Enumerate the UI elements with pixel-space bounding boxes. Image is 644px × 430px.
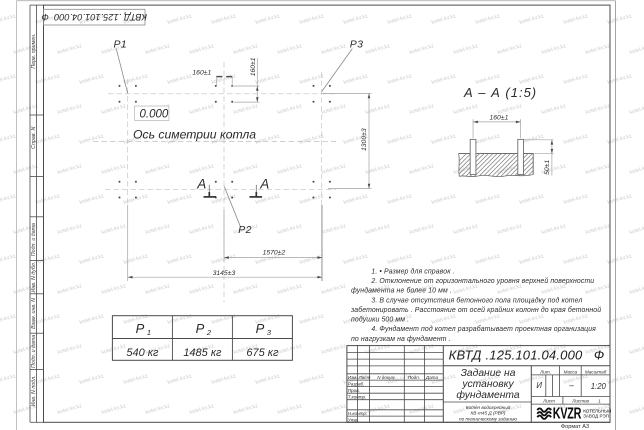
svg-text:kotel-kv.kz: kotel-kv.kz	[497, 43, 523, 56]
svg-text:kotel-kv.kz: kotel-kv.kz	[519, 253, 545, 266]
svg-text:160±1: 160±1	[490, 115, 509, 122]
svg-text:kotel-kv.kz: kotel-kv.kz	[123, 193, 149, 206]
svg-text:kotel-kv.kz: kotel-kv.kz	[57, 103, 83, 116]
svg-text:Инв. N дубл.: Инв. N дубл.	[31, 262, 37, 293]
svg-text:kotel-kv.kz: kotel-kv.kz	[541, 43, 567, 56]
svg-text:Перв. примен.: Перв. примен.	[31, 33, 37, 68]
svg-text:kotel-kv.kz: kotel-kv.kz	[563, 193, 589, 206]
svg-text:P3: P3	[350, 39, 363, 51]
svg-text:kotel-kv.kz: kotel-kv.kz	[35, 193, 61, 206]
svg-text:kotel-kv.kz: kotel-kv.kz	[519, 13, 545, 26]
svg-text:фундамента не более 10 мм .: фундамента не более 10 мм .	[351, 287, 452, 295]
svg-text:фундамента: фундамента	[456, 389, 520, 401]
svg-text:kotel-kv.kz: kotel-kv.kz	[0, 313, 17, 326]
svg-text:Т.контр.: Т.контр.	[348, 395, 367, 400]
svg-text:kotel-kv.kz: kotel-kv.kz	[255, 373, 281, 386]
svg-text:kotel-kv.kz: kotel-kv.kz	[475, 133, 501, 146]
svg-text:kotel-kv.kz: kotel-kv.kz	[167, 373, 193, 386]
svg-text:kotel-kv.kz: kotel-kv.kz	[343, 253, 369, 266]
svg-text:А – А (1:5): А – А (1:5)	[463, 85, 537, 100]
svg-text:160±1: 160±1	[192, 70, 211, 77]
svg-text:kotel-kv.kz: kotel-kv.kz	[79, 133, 105, 146]
svg-text:kotel-kv.kz: kotel-kv.kz	[0, 373, 17, 386]
svg-text:kotel-kv.kz: kotel-kv.kz	[629, 283, 644, 296]
svg-text:1:20: 1:20	[591, 382, 607, 391]
svg-text:kotel-kv.kz: kotel-kv.kz	[409, 163, 435, 176]
svg-text:kotel-kv.kz: kotel-kv.kz	[57, 403, 83, 416]
svg-text:kotel-kv.kz: kotel-kv.kz	[629, 103, 644, 116]
svg-text:P: P	[256, 321, 265, 336]
svg-text:А: А	[196, 177, 206, 192]
svg-text:подушки 500 мм .: подушки 500 мм .	[351, 316, 409, 324]
svg-text:kotel-kv.kz: kotel-kv.kz	[585, 163, 611, 176]
svg-text:Задание на: Задание на	[461, 368, 516, 379]
svg-text:kotel-kv.kz: kotel-kv.kz	[35, 73, 61, 86]
svg-text:kotel-kv.kz: kotel-kv.kz	[607, 373, 633, 386]
svg-text:kotel-kv.kz: kotel-kv.kz	[321, 343, 347, 356]
svg-text:Лист: Лист	[542, 399, 555, 404]
svg-text:kotel-kv.kz: kotel-kv.kz	[277, 223, 303, 236]
svg-text:kotel-kv.kz: kotel-kv.kz	[79, 313, 105, 326]
svg-text:Изм.: Изм.	[348, 375, 358, 380]
svg-text:kotel-kv.kz: kotel-kv.kz	[299, 313, 325, 326]
svg-text:kotel-kv.kz: kotel-kv.kz	[299, 13, 325, 26]
svg-text:kotel-kv.kz: kotel-kv.kz	[145, 223, 171, 236]
svg-text:kotel-kv.kz: kotel-kv.kz	[519, 313, 545, 326]
svg-text:kotel-kv.kz: kotel-kv.kz	[123, 253, 149, 266]
svg-text:kotel-kv.kz: kotel-kv.kz	[57, 163, 83, 176]
svg-text:kotel-kv.kz: kotel-kv.kz	[409, 43, 435, 56]
svg-text:Формат А3: Формат А3	[561, 424, 589, 430]
svg-text:Масштаб: Масштаб	[585, 369, 607, 374]
svg-text:kotel-kv.kz: kotel-kv.kz	[0, 193, 17, 206]
svg-text:kotel-kv.kz: kotel-kv.kz	[277, 283, 303, 296]
svg-text:Масса: Масса	[564, 369, 578, 374]
svg-text:160±1: 160±1	[250, 57, 257, 76]
svg-text:kotel-kv.kz: kotel-kv.kz	[233, 283, 259, 296]
svg-text:ЗАВОД РЭП: ЗАВОД РЭП	[583, 414, 609, 419]
svg-text:kotel-kv.kz: kotel-kv.kz	[255, 73, 281, 86]
svg-text:kotel-kv.kz: kotel-kv.kz	[277, 163, 303, 176]
svg-text:установку: установку	[461, 379, 514, 390]
svg-text:2: 2	[206, 328, 212, 337]
svg-text:–: –	[568, 381, 574, 390]
svg-text:kotel-kv.kz: kotel-kv.kz	[321, 43, 347, 56]
svg-text:kotel-kv.kz: kotel-kv.kz	[475, 13, 501, 26]
svg-text:kotel-kv.kz: kotel-kv.kz	[123, 73, 149, 86]
svg-text:Дата: Дата	[425, 375, 439, 380]
svg-text:kotel-kv.kz: kotel-kv.kz	[0, 13, 17, 26]
svg-text:kotel-kv.kz: kotel-kv.kz	[101, 223, 127, 236]
svg-text:kotel-kv.kz: kotel-kv.kz	[629, 43, 644, 56]
svg-text:kotel-kv.kz: kotel-kv.kz	[0, 133, 17, 146]
svg-text:kotel-kv.kz: kotel-kv.kz	[255, 193, 281, 206]
svg-text:kotel-kv.kz: kotel-kv.kz	[497, 223, 523, 236]
svg-text:kotel-kv.kz: kotel-kv.kz	[607, 313, 633, 326]
svg-text:kotel-kv.kz: kotel-kv.kz	[35, 253, 61, 266]
svg-text:kotel-kv.kz: kotel-kv.kz	[585, 43, 611, 56]
svg-text:Лит.: Лит.	[539, 369, 551, 374]
svg-text:kotel-kv.kz: kotel-kv.kz	[585, 103, 611, 116]
svg-text:1: 1	[598, 399, 601, 404]
svg-text:kotel-kv.kz: kotel-kv.kz	[607, 13, 633, 26]
svg-text:kotel-kv.kz: kotel-kv.kz	[343, 193, 369, 206]
svg-text:kotel-kv.kz: kotel-kv.kz	[211, 373, 237, 386]
svg-text:kotel-kv.kz: kotel-kv.kz	[189, 223, 215, 236]
svg-text:kotel-kv.kz: kotel-kv.kz	[541, 283, 567, 296]
svg-text:P1: P1	[114, 39, 127, 51]
svg-text:kotel-kv.kz: kotel-kv.kz	[277, 403, 303, 416]
svg-text:kotel-kv.kz: kotel-kv.kz	[35, 313, 61, 326]
svg-text:kotel-kv.kz: kotel-kv.kz	[57, 43, 83, 56]
svg-text:1485 кг: 1485 кг	[183, 347, 222, 359]
svg-text:kotel-kv.kz: kotel-kv.kz	[431, 133, 457, 146]
svg-text:Н.контр.: Н.контр.	[348, 411, 367, 416]
svg-text:kotel-kv.kz: kotel-kv.kz	[563, 313, 589, 326]
svg-text:kotel-kv.kz: kotel-kv.kz	[79, 73, 105, 86]
svg-text:kotel-kv.kz: kotel-kv.kz	[101, 283, 127, 296]
svg-text:Инв. N подл.: Инв. N подл.	[31, 375, 37, 406]
svg-text:kotel-kv.kz: kotel-kv.kz	[519, 73, 545, 86]
svg-text:kotel-kv.kz: kotel-kv.kz	[431, 73, 457, 86]
svg-text:0.000: 0.000	[140, 109, 169, 121]
svg-text:Справ. N: Справ. N	[31, 126, 37, 148]
svg-text:kotel-kv.kz: kotel-kv.kz	[233, 403, 259, 416]
svg-text:Листов: Листов	[571, 399, 589, 404]
svg-text:3145±3: 3145±3	[213, 270, 236, 277]
svg-text:kotel-kv.kz: kotel-kv.kz	[387, 193, 413, 206]
svg-text:kotel-kv.kz: kotel-kv.kz	[277, 343, 303, 356]
svg-text:kotel-kv.kz: kotel-kv.kz	[585, 283, 611, 296]
svg-text:3: 3	[267, 328, 272, 337]
svg-text:kotel-kv.kz: kotel-kv.kz	[563, 73, 589, 86]
svg-text:kotel-kv.kz: kotel-kv.kz	[629, 163, 644, 176]
svg-text:kotel-kv.kz: kotel-kv.kz	[431, 313, 457, 326]
svg-text:kotel-kv.kz: kotel-kv.kz	[541, 223, 567, 236]
svg-text:kotel-kv.kz: kotel-kv.kz	[167, 313, 193, 326]
svg-text:kotel-kv.kz: kotel-kv.kz	[321, 223, 347, 236]
svg-text:kotel-kv.kz: kotel-kv.kz	[409, 103, 435, 116]
svg-text:Пров.: Пров.	[348, 388, 360, 393]
svg-text:kotel-kv.kz: kotel-kv.kz	[607, 133, 633, 146]
svg-text:kotel-kv.kz: kotel-kv.kz	[35, 133, 61, 146]
svg-text:kotel-kv.kz: kotel-kv.kz	[79, 373, 105, 386]
svg-text:kotel-kv.kz: kotel-kv.kz	[189, 163, 215, 176]
svg-text:kotel-kv.kz: kotel-kv.kz	[431, 193, 457, 206]
svg-text:kotel-kv.kz: kotel-kv.kz	[343, 13, 369, 26]
svg-text:kotel-kv.kz: kotel-kv.kz	[431, 13, 457, 26]
svg-text:kotel-kv.kz: kotel-kv.kz	[145, 163, 171, 176]
svg-text:4. Фундамент под котел разраб: 4. Фундамент под котел разрабатывает про…	[371, 325, 596, 333]
svg-text:kotel-kv.kz: kotel-kv.kz	[167, 73, 193, 86]
svg-text:kotel-kv.kz: kotel-kv.kz	[607, 73, 633, 86]
svg-text:kotel-kv.kz: kotel-kv.kz	[387, 133, 413, 146]
svg-text:kotel-kv.kz: kotel-kv.kz	[343, 73, 369, 86]
svg-text:по нагрузкам на фундамент .: по нагрузкам на фундамент .	[351, 335, 451, 343]
svg-text:забетонировать . Расстояние от: забетонировать . Расстояние от осей край…	[350, 306, 601, 314]
svg-text:kotel-kv.kz: kotel-kv.kz	[629, 223, 644, 236]
svg-text:kotel-kv.kz: kotel-kv.kz	[541, 103, 567, 116]
svg-text:kotel-kv.kz: kotel-kv.kz	[233, 163, 259, 176]
svg-text:Ось симетрии котла: Ось симетрии котла	[133, 127, 256, 141]
svg-text:kotel-kv.kz: kotel-kv.kz	[189, 103, 215, 116]
svg-text:KVZR: KVZR	[553, 405, 582, 422]
svg-text:kotel-kv.kz: kotel-kv.kz	[299, 253, 325, 266]
svg-text:Котел водогрейный: Котел водогрейный	[466, 404, 511, 410]
svg-text:1300±3: 1300±3	[361, 128, 368, 151]
svg-text:kotel-kv.kz: kotel-kv.kz	[299, 193, 325, 206]
svg-text:kotel-kv.kz: kotel-kv.kz	[563, 13, 589, 26]
svg-text:kotel-kv.kz: kotel-kv.kz	[563, 133, 589, 146]
svg-text:1: 1	[147, 328, 151, 337]
svg-text:kotel-kv.kz: kotel-kv.kz	[453, 223, 479, 236]
svg-text:kotel-kv.kz: kotel-kv.kz	[101, 103, 127, 116]
svg-text:kotel-kv.kz: kotel-kv.kz	[211, 313, 237, 326]
svg-text:КВТД .125.101.04.000 Ф: КВТД .125.101.04.000 Ф	[41, 12, 147, 22]
svg-text:kotel-kv.kz: kotel-kv.kz	[365, 343, 391, 356]
svg-text:kotel-kv.kz: kotel-kv.kz	[189, 43, 215, 56]
svg-text:kotel-kv.kz: kotel-kv.kz	[35, 373, 61, 386]
svg-text:kotel-kv.kz: kotel-kv.kz	[497, 283, 523, 296]
svg-text:Подп.: Подп.	[408, 375, 420, 380]
svg-text:Лист: Лист	[358, 375, 371, 380]
svg-text:kotel-kv.kz: kotel-kv.kz	[0, 253, 17, 266]
svg-text:kotel-kv.kz: kotel-kv.kz	[585, 223, 611, 236]
svg-text:КВТД .125.101.04.000 Ф: КВТД .125.101.04.000 Ф	[449, 348, 605, 363]
svg-text:kotel-kv.kz: kotel-kv.kz	[101, 343, 127, 356]
svg-text:N докум.: N докум.	[377, 375, 396, 380]
svg-text:kotel-kv.kz: kotel-kv.kz	[255, 133, 281, 146]
svg-text:kotel-kv.kz: kotel-kv.kz	[167, 13, 193, 26]
svg-text:kotel-kv.kz: kotel-kv.kz	[453, 283, 479, 296]
svg-text:kotel-kv.kz: kotel-kv.kz	[189, 283, 215, 296]
svg-text:kotel-kv.kz: kotel-kv.kz	[409, 223, 435, 236]
svg-text:kotel-kv.kz: kotel-kv.kz	[299, 373, 325, 386]
svg-text:kotel-kv.kz: kotel-kv.kz	[563, 253, 589, 266]
svg-text:1. • Размер для справок .: 1. • Размер для справок .	[371, 267, 454, 275]
svg-text:kotel-kv.kz: kotel-kv.kz	[79, 253, 105, 266]
svg-text:kotel-kv.kz: kotel-kv.kz	[189, 403, 215, 416]
svg-text:kotel-kv.kz: kotel-kv.kz	[387, 13, 413, 26]
svg-text:kotel-kv.kz: kotel-kv.kz	[607, 253, 633, 266]
svg-text:kotel-kv.kz: kotel-kv.kz	[453, 43, 479, 56]
svg-text:P: P	[136, 321, 145, 336]
svg-text:kotel-kv.kz: kotel-kv.kz	[475, 313, 501, 326]
svg-text:И: И	[536, 381, 542, 390]
svg-text:kotel-kv.kz: kotel-kv.kz	[321, 403, 347, 416]
svg-text:kotel-kv.kz: kotel-kv.kz	[365, 223, 391, 236]
svg-text:kotel-kv.kz: kotel-kv.kz	[79, 193, 105, 206]
svg-text:Подп. и дата: Подп. и дата	[31, 335, 37, 368]
svg-text:kotel-kv.kz: kotel-kv.kz	[321, 163, 347, 176]
svg-text:kotel-kv.kz: kotel-kv.kz	[409, 343, 435, 356]
svg-text:kotel-kv.kz: kotel-kv.kz	[519, 193, 545, 206]
svg-text:kotel-kv.kz: kotel-kv.kz	[0, 73, 17, 86]
svg-text:1570±2: 1570±2	[263, 249, 286, 256]
svg-text:Разраб.: Разраб.	[348, 382, 365, 387]
svg-text:2. Отклонение от горизонтальн: 2. Отклонение от горизонтального уровня …	[370, 277, 594, 285]
svg-text:P2: P2	[238, 224, 251, 236]
svg-text:kotel-kv.kz: kotel-kv.kz	[101, 403, 127, 416]
svg-text:kotel-kv.kz: kotel-kv.kz	[387, 73, 413, 86]
svg-text:kotel-kv.kz: kotel-kv.kz	[233, 43, 259, 56]
svg-text:kotel-kv.kz: kotel-kv.kz	[101, 163, 127, 176]
svg-text:kotel-kv.kz: kotel-kv.kz	[233, 103, 259, 116]
svg-text:КВ-т45 Д (РВР): КВ-т45 Д (РВР)	[471, 411, 506, 416]
svg-text:kotel-kv.kz: kotel-kv.kz	[629, 343, 644, 356]
svg-text:kotel-kv.kz: kotel-kv.kz	[145, 43, 171, 56]
svg-text:kotel-kv.kz: kotel-kv.kz	[123, 373, 149, 386]
svg-text:kotel-kv.kz: kotel-kv.kz	[255, 13, 281, 26]
svg-text:3. В случае отсутствия бетонн: 3. В случае отсутствия бетонного пола пл…	[371, 296, 582, 304]
svg-text:КОТЕЛЬНЫЙ: КОТЕЛЬНЫЙ	[583, 406, 611, 413]
svg-text:kotel-kv.kz: kotel-kv.kz	[167, 193, 193, 206]
svg-text:kotel-kv.kz: kotel-kv.kz	[387, 253, 413, 266]
svg-text:kotel-kv.kz: kotel-kv.kz	[321, 283, 347, 296]
svg-text:kotel-kv.kz: kotel-kv.kz	[453, 103, 479, 116]
svg-text:kotel-kv.kz: kotel-kv.kz	[145, 403, 171, 416]
svg-text:kotel-kv.kz: kotel-kv.kz	[475, 253, 501, 266]
svg-text:P: P	[196, 321, 205, 336]
svg-text:675 кг: 675 кг	[246, 347, 279, 359]
svg-text:Взам. инв. N: Взам. инв. N	[31, 298, 37, 329]
svg-text:kotel-kv.kz: kotel-kv.kz	[475, 73, 501, 86]
svg-text:Утв.: Утв.	[348, 417, 358, 422]
svg-text:А: А	[259, 177, 269, 192]
svg-text:kotel-kv.kz: kotel-kv.kz	[607, 193, 633, 206]
svg-text:540 кг: 540 кг	[126, 347, 159, 359]
svg-text:kotel-kv.kz: kotel-kv.kz	[211, 13, 237, 26]
svg-text:kotel-kv.kz: kotel-kv.kz	[365, 43, 391, 56]
svg-text:kotel-kv.kz: kotel-kv.kz	[629, 403, 644, 416]
svg-text:kotel-kv.kz: kotel-kv.kz	[277, 103, 303, 116]
svg-text:kotel-kv.kz: kotel-kv.kz	[475, 193, 501, 206]
svg-text:по техническому заданию: по техническому заданию	[459, 416, 517, 421]
svg-text:kotel-kv.kz: kotel-kv.kz	[57, 343, 83, 356]
svg-text:kotel-kv.kz: kotel-kv.kz	[299, 133, 325, 146]
svg-text:kotel-kv.kz: kotel-kv.kz	[431, 253, 457, 266]
svg-text:kotel-kv.kz: kotel-kv.kz	[299, 73, 325, 86]
svg-text:Подп. и дата: Подп. и дата	[31, 223, 37, 256]
svg-text:kotel-kv.kz: kotel-kv.kz	[321, 103, 347, 116]
svg-text:kotel-kv.kz: kotel-kv.kz	[57, 223, 83, 236]
svg-text:kotel-kv.kz: kotel-kv.kz	[57, 283, 83, 296]
svg-text:50±1: 50±1	[544, 160, 551, 175]
svg-text:kotel-kv.kz: kotel-kv.kz	[145, 283, 171, 296]
svg-text:kotel-kv.kz: kotel-kv.kz	[277, 43, 303, 56]
svg-text:kotel-kv.kz: kotel-kv.kz	[167, 253, 193, 266]
